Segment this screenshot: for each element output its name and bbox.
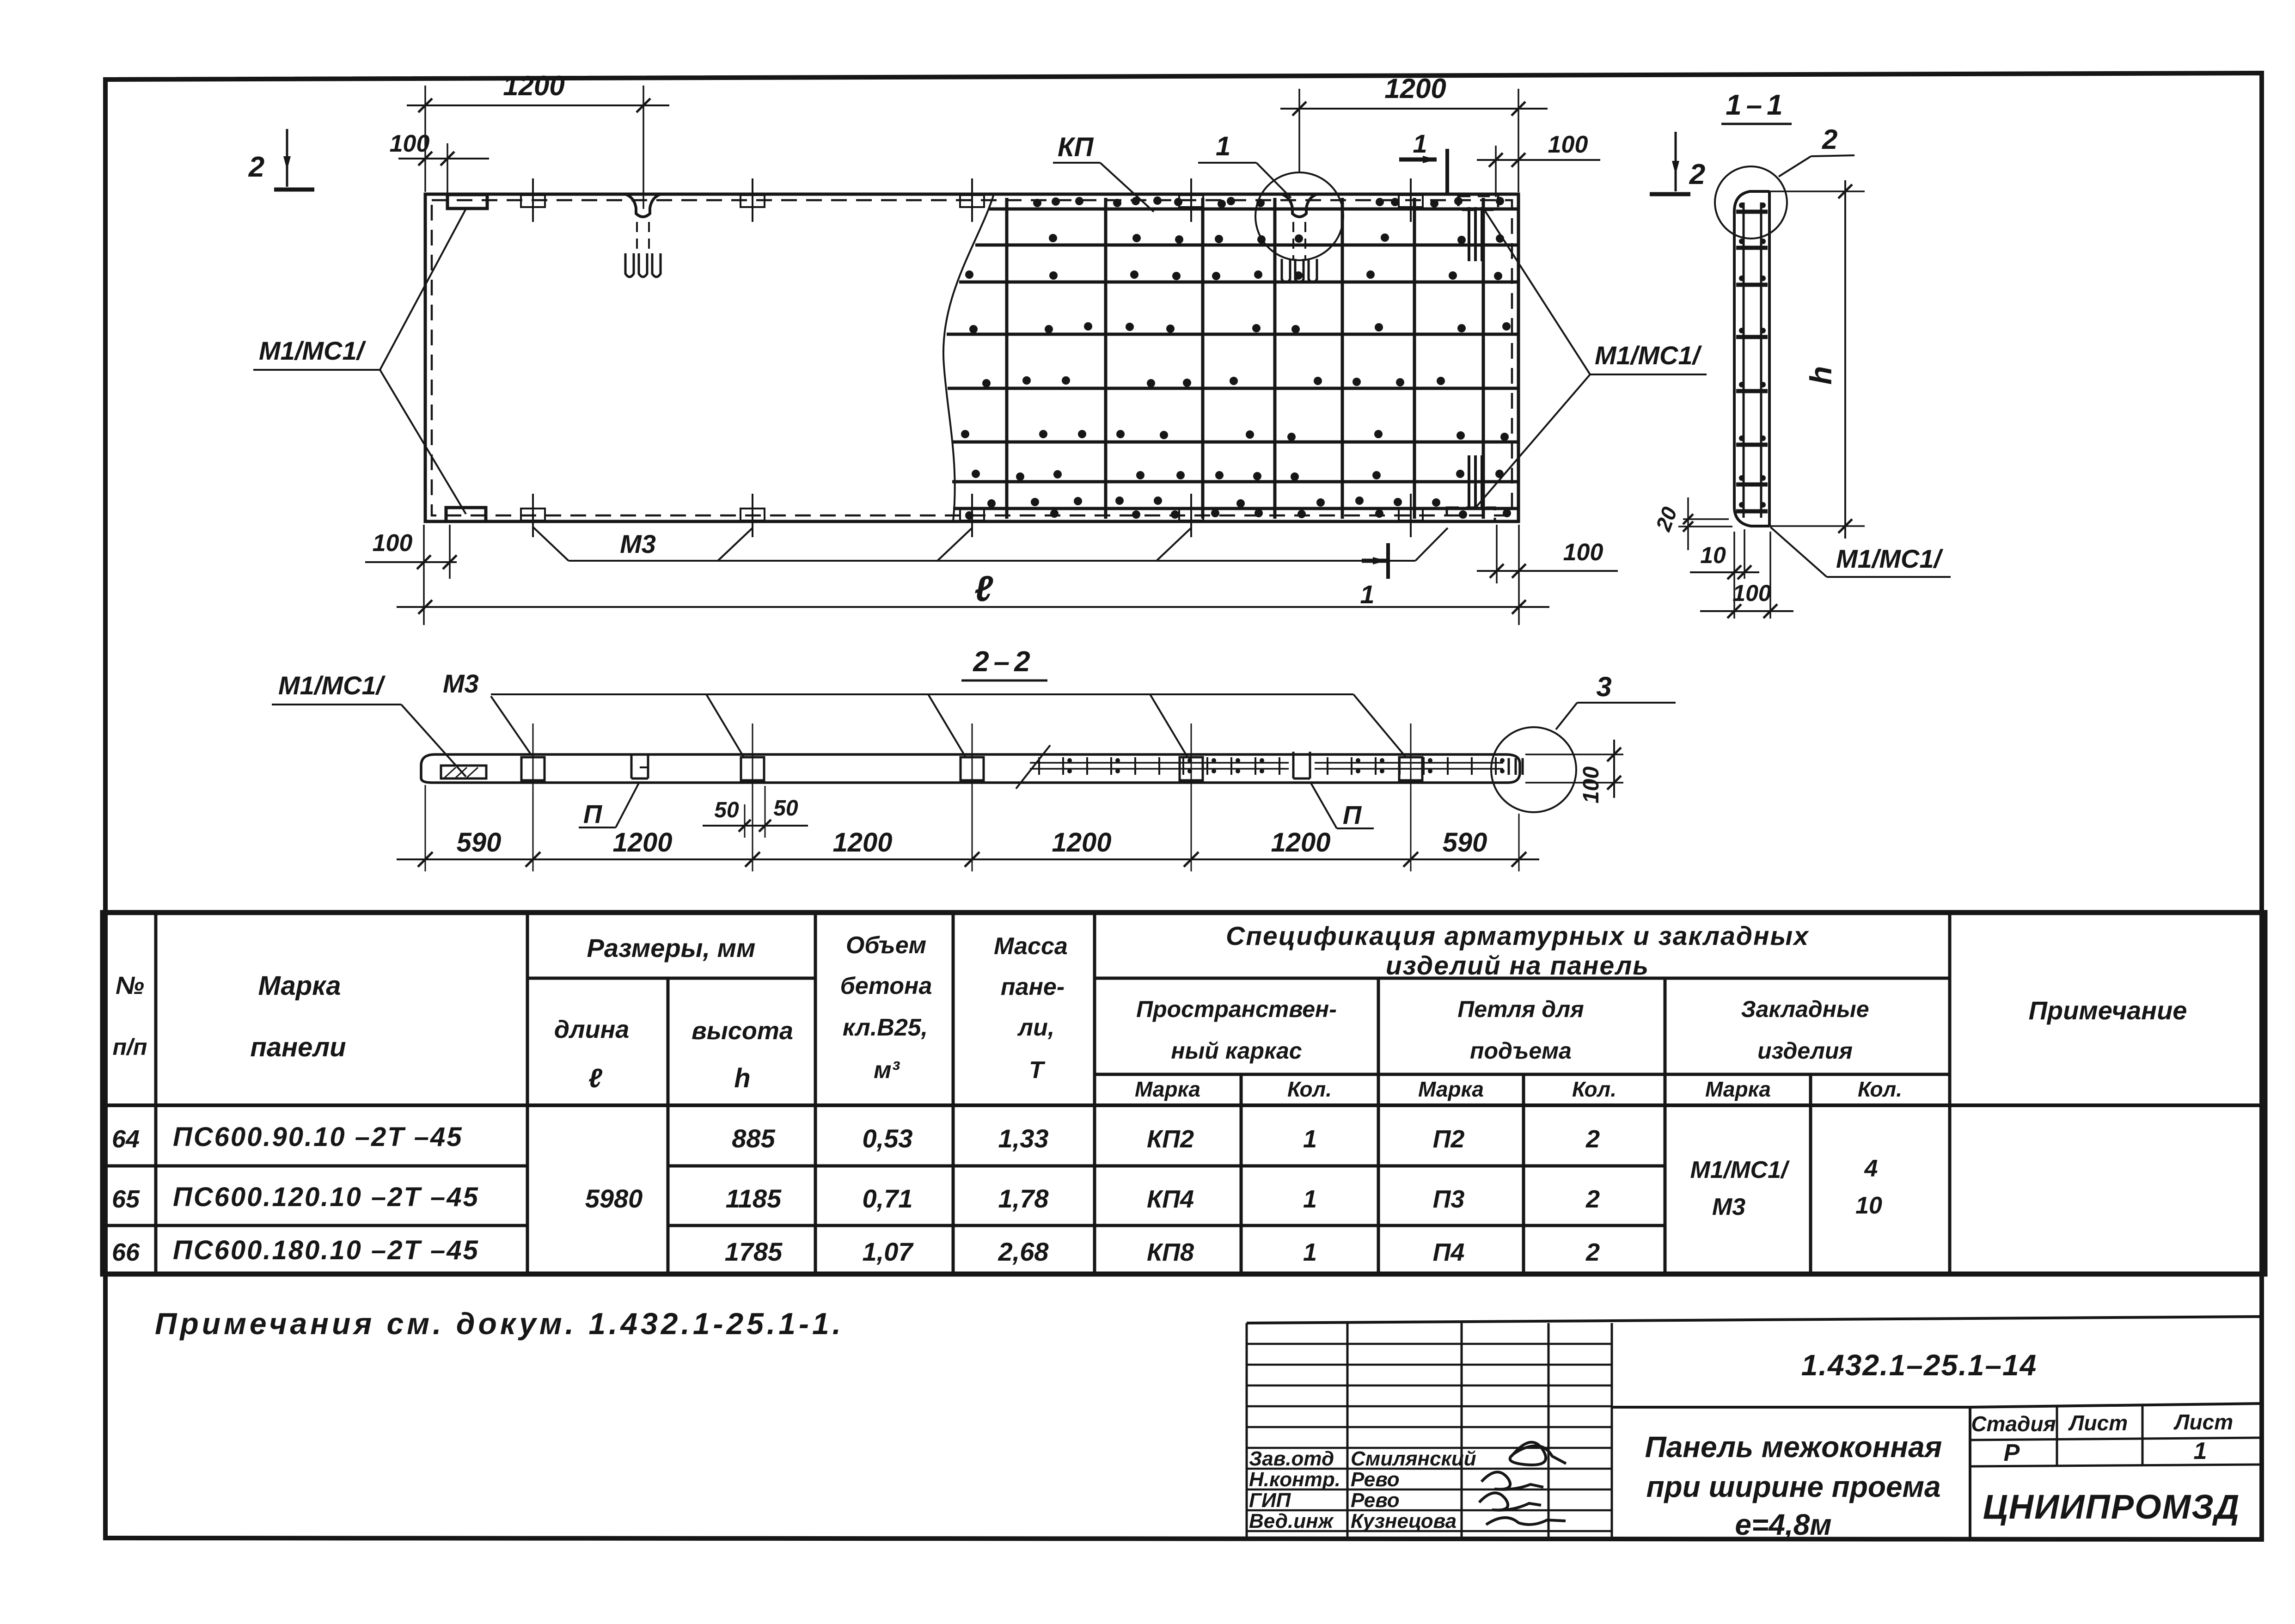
svg-text:1: 1 (1413, 129, 1427, 158)
svg-text:панели: панели (250, 1032, 346, 1062)
svg-text:П2: П2 (1433, 1125, 1465, 1153)
svg-text:2: 2 (1585, 1185, 1600, 1213)
svg-text:1: 1 (1303, 1185, 1317, 1213)
svg-text:Лист: Лист (2173, 1410, 2233, 1434)
svg-text:е=4,8м: е=4,8м (1735, 1508, 1831, 1541)
svg-text:100: 100 (1579, 766, 1603, 803)
svg-text:М1/МС1/: М1/МС1/ (1690, 1157, 1790, 1183)
svg-text:1785: 1785 (725, 1237, 783, 1266)
svg-text:Закладные: Закладные (1741, 996, 1869, 1022)
svg-text:Объем: Объем (846, 932, 926, 959)
svg-text:ли,: ли, (1017, 1014, 1055, 1041)
svg-text:изделия: изделия (1757, 1038, 1853, 1064)
svg-text:1200: 1200 (832, 827, 892, 858)
svg-text:Кузнецова: Кузнецова (1351, 1510, 1457, 1532)
svg-text:10: 10 (1855, 1192, 1882, 1219)
svg-text:2: 2 (1585, 1125, 1600, 1153)
svg-text:изделий на панель: изделий на панель (1386, 951, 1649, 981)
svg-text:М1/МС1/: М1/МС1/ (278, 671, 386, 700)
svg-text:Марка: Марка (1418, 1077, 1484, 1101)
svg-text:Масса: Масса (994, 933, 1068, 960)
svg-text:при ширине проема: при ширине проема (1646, 1470, 1940, 1503)
svg-text:66: 66 (112, 1238, 140, 1266)
svg-text:Примечания см. докум. 1.: Примечания см. докум. 1.432.1-25.1-1. (155, 1306, 844, 1341)
svg-text:М1/МС1/: М1/МС1/ (259, 336, 367, 365)
svg-text:1–1: 1–1 (1726, 89, 1787, 121)
svg-text:Марка: Марка (258, 971, 341, 1001)
svg-text:Марка: Марка (1135, 1077, 1200, 1101)
svg-text:100: 100 (1732, 580, 1771, 606)
svg-text:высота: высота (692, 1017, 793, 1045)
svg-text:КП8: КП8 (1147, 1238, 1194, 1266)
svg-text:1185: 1185 (726, 1184, 782, 1213)
svg-text:2: 2 (248, 151, 264, 183)
svg-text:5980: 5980 (585, 1184, 643, 1213)
svg-text:1,78: 1,78 (998, 1184, 1049, 1213)
svg-text:Марка: Марка (1705, 1077, 1771, 1101)
svg-text:100: 100 (1563, 539, 1603, 566)
svg-text:h: h (1804, 366, 1838, 385)
svg-text:1.432.1–25.1–14: 1.432.1–25.1–14 (1801, 1348, 2037, 1382)
svg-text:2: 2 (1822, 124, 1837, 155)
svg-text:бетона: бетона (840, 973, 932, 999)
svg-text:64: 64 (112, 1125, 140, 1153)
svg-text:Рево: Рево (1351, 1489, 1400, 1512)
svg-text:П: П (1343, 800, 1362, 829)
svg-text:1200: 1200 (503, 70, 564, 101)
svg-text:М1/МС1/: М1/МС1/ (1836, 544, 1944, 573)
svg-text:КП4: КП4 (1147, 1185, 1194, 1213)
svg-text:ГИП: ГИП (1249, 1489, 1291, 1512)
svg-text:ПС600.120.10 –2Т –45: ПС600.120.10 –2Т –45 (173, 1182, 479, 1212)
svg-text:кл.В25,: кл.В25, (843, 1014, 928, 1041)
svg-text:Примечание: Примечание (2029, 996, 2187, 1025)
svg-text:1: 1 (1360, 580, 1374, 609)
svg-text:1: 1 (2194, 1438, 2207, 1465)
svg-text:885: 885 (732, 1124, 775, 1153)
svg-text:КП: КП (1058, 132, 1094, 162)
svg-text:2,68: 2,68 (998, 1237, 1049, 1266)
svg-text:ЦНИИПРОМЗД: ЦНИИПРОМЗД (1983, 1488, 2240, 1526)
svg-text:0,71: 0,71 (863, 1184, 913, 1213)
svg-text:1200: 1200 (612, 827, 672, 858)
svg-text:м³: м³ (874, 1057, 900, 1084)
svg-text:3: 3 (1596, 671, 1611, 702)
svg-text:1200: 1200 (1384, 73, 1446, 104)
svg-text:65: 65 (112, 1185, 140, 1213)
svg-text:0,53: 0,53 (863, 1124, 913, 1153)
svg-text:1: 1 (1303, 1238, 1317, 1266)
svg-text:ПС600.90.10 –2Т –45: ПС600.90.10 –2Т –45 (173, 1122, 463, 1152)
svg-text:пане-: пане- (1001, 974, 1065, 1000)
svg-text:Вед.инж: Вед.инж (1249, 1510, 1334, 1532)
svg-text:Н.контр.: Н.контр. (1249, 1468, 1340, 1491)
svg-text:КП2: КП2 (1147, 1125, 1194, 1153)
svg-text:100: 100 (1548, 131, 1588, 158)
svg-text:Кол.: Кол. (1858, 1077, 1902, 1101)
svg-text:1: 1 (1303, 1125, 1317, 1153)
svg-text:Рево: Рево (1351, 1468, 1400, 1491)
svg-text:длина: длина (554, 1016, 630, 1043)
svg-text:Панель межоконная: Панель межоконная (1645, 1430, 1942, 1464)
svg-text:подъема: подъема (1470, 1038, 1572, 1064)
svg-text:Р: Р (2004, 1440, 2020, 1466)
svg-text:М3: М3 (620, 529, 656, 558)
svg-text:50: 50 (714, 798, 739, 822)
svg-text:Кол.: Кол. (1572, 1077, 1616, 1101)
svg-text:h: h (734, 1063, 750, 1093)
svg-text:Пространствен-: Пространствен- (1136, 996, 1337, 1022)
svg-text:1200: 1200 (1271, 827, 1330, 858)
svg-text:4: 4 (1864, 1155, 1878, 1182)
svg-text:ПС600.180.10 –2Т –45: ПС600.180.10 –2Т –45 (173, 1235, 479, 1265)
svg-text:590: 590 (457, 827, 502, 858)
svg-text:П3: П3 (1433, 1185, 1465, 1213)
svg-text:№: № (116, 972, 144, 999)
svg-text:2: 2 (1689, 159, 1705, 190)
svg-text:п/п: п/п (113, 1034, 147, 1060)
svg-text:10: 10 (1700, 542, 1726, 568)
svg-text:П4: П4 (1433, 1238, 1465, 1266)
svg-text:2–2: 2–2 (973, 646, 1034, 678)
svg-text:1,07: 1,07 (863, 1237, 914, 1266)
svg-text:1,33: 1,33 (998, 1124, 1049, 1153)
svg-text:1: 1 (1216, 131, 1230, 161)
svg-text:Размеры, мм: Размеры, мм (587, 933, 756, 962)
svg-text:Кол.: Кол. (1287, 1077, 1332, 1101)
svg-text:Т: Т (1029, 1057, 1046, 1084)
svg-text:П: П (583, 799, 603, 828)
svg-text:Спецификация арматурных и з: Спецификация арматурных и закладных (1226, 921, 1809, 951)
svg-text:М1/МС1/: М1/МС1/ (1595, 341, 1702, 370)
svg-text:Зав.отд: Зав.отд (1249, 1447, 1334, 1470)
svg-text:100: 100 (373, 530, 413, 557)
svg-text:1200: 1200 (1052, 827, 1111, 858)
svg-text:100: 100 (390, 130, 430, 157)
svg-text:2: 2 (1585, 1238, 1600, 1266)
svg-text:Лист: Лист (2068, 1411, 2128, 1435)
svg-text:М3: М3 (1712, 1194, 1745, 1220)
svg-text:ℓ: ℓ (588, 1063, 603, 1093)
svg-text:590: 590 (1443, 827, 1487, 858)
svg-text:ный каркас: ный каркас (1171, 1038, 1302, 1064)
svg-text:М3: М3 (443, 669, 479, 698)
svg-text:Смилянский: Смилянский (1351, 1447, 1476, 1470)
svg-text:Петля для: Петля для (1457, 996, 1584, 1022)
svg-text:50: 50 (773, 796, 798, 821)
svg-text:ℓ: ℓ (974, 568, 993, 609)
svg-text:Стадия: Стадия (1971, 1412, 2056, 1436)
